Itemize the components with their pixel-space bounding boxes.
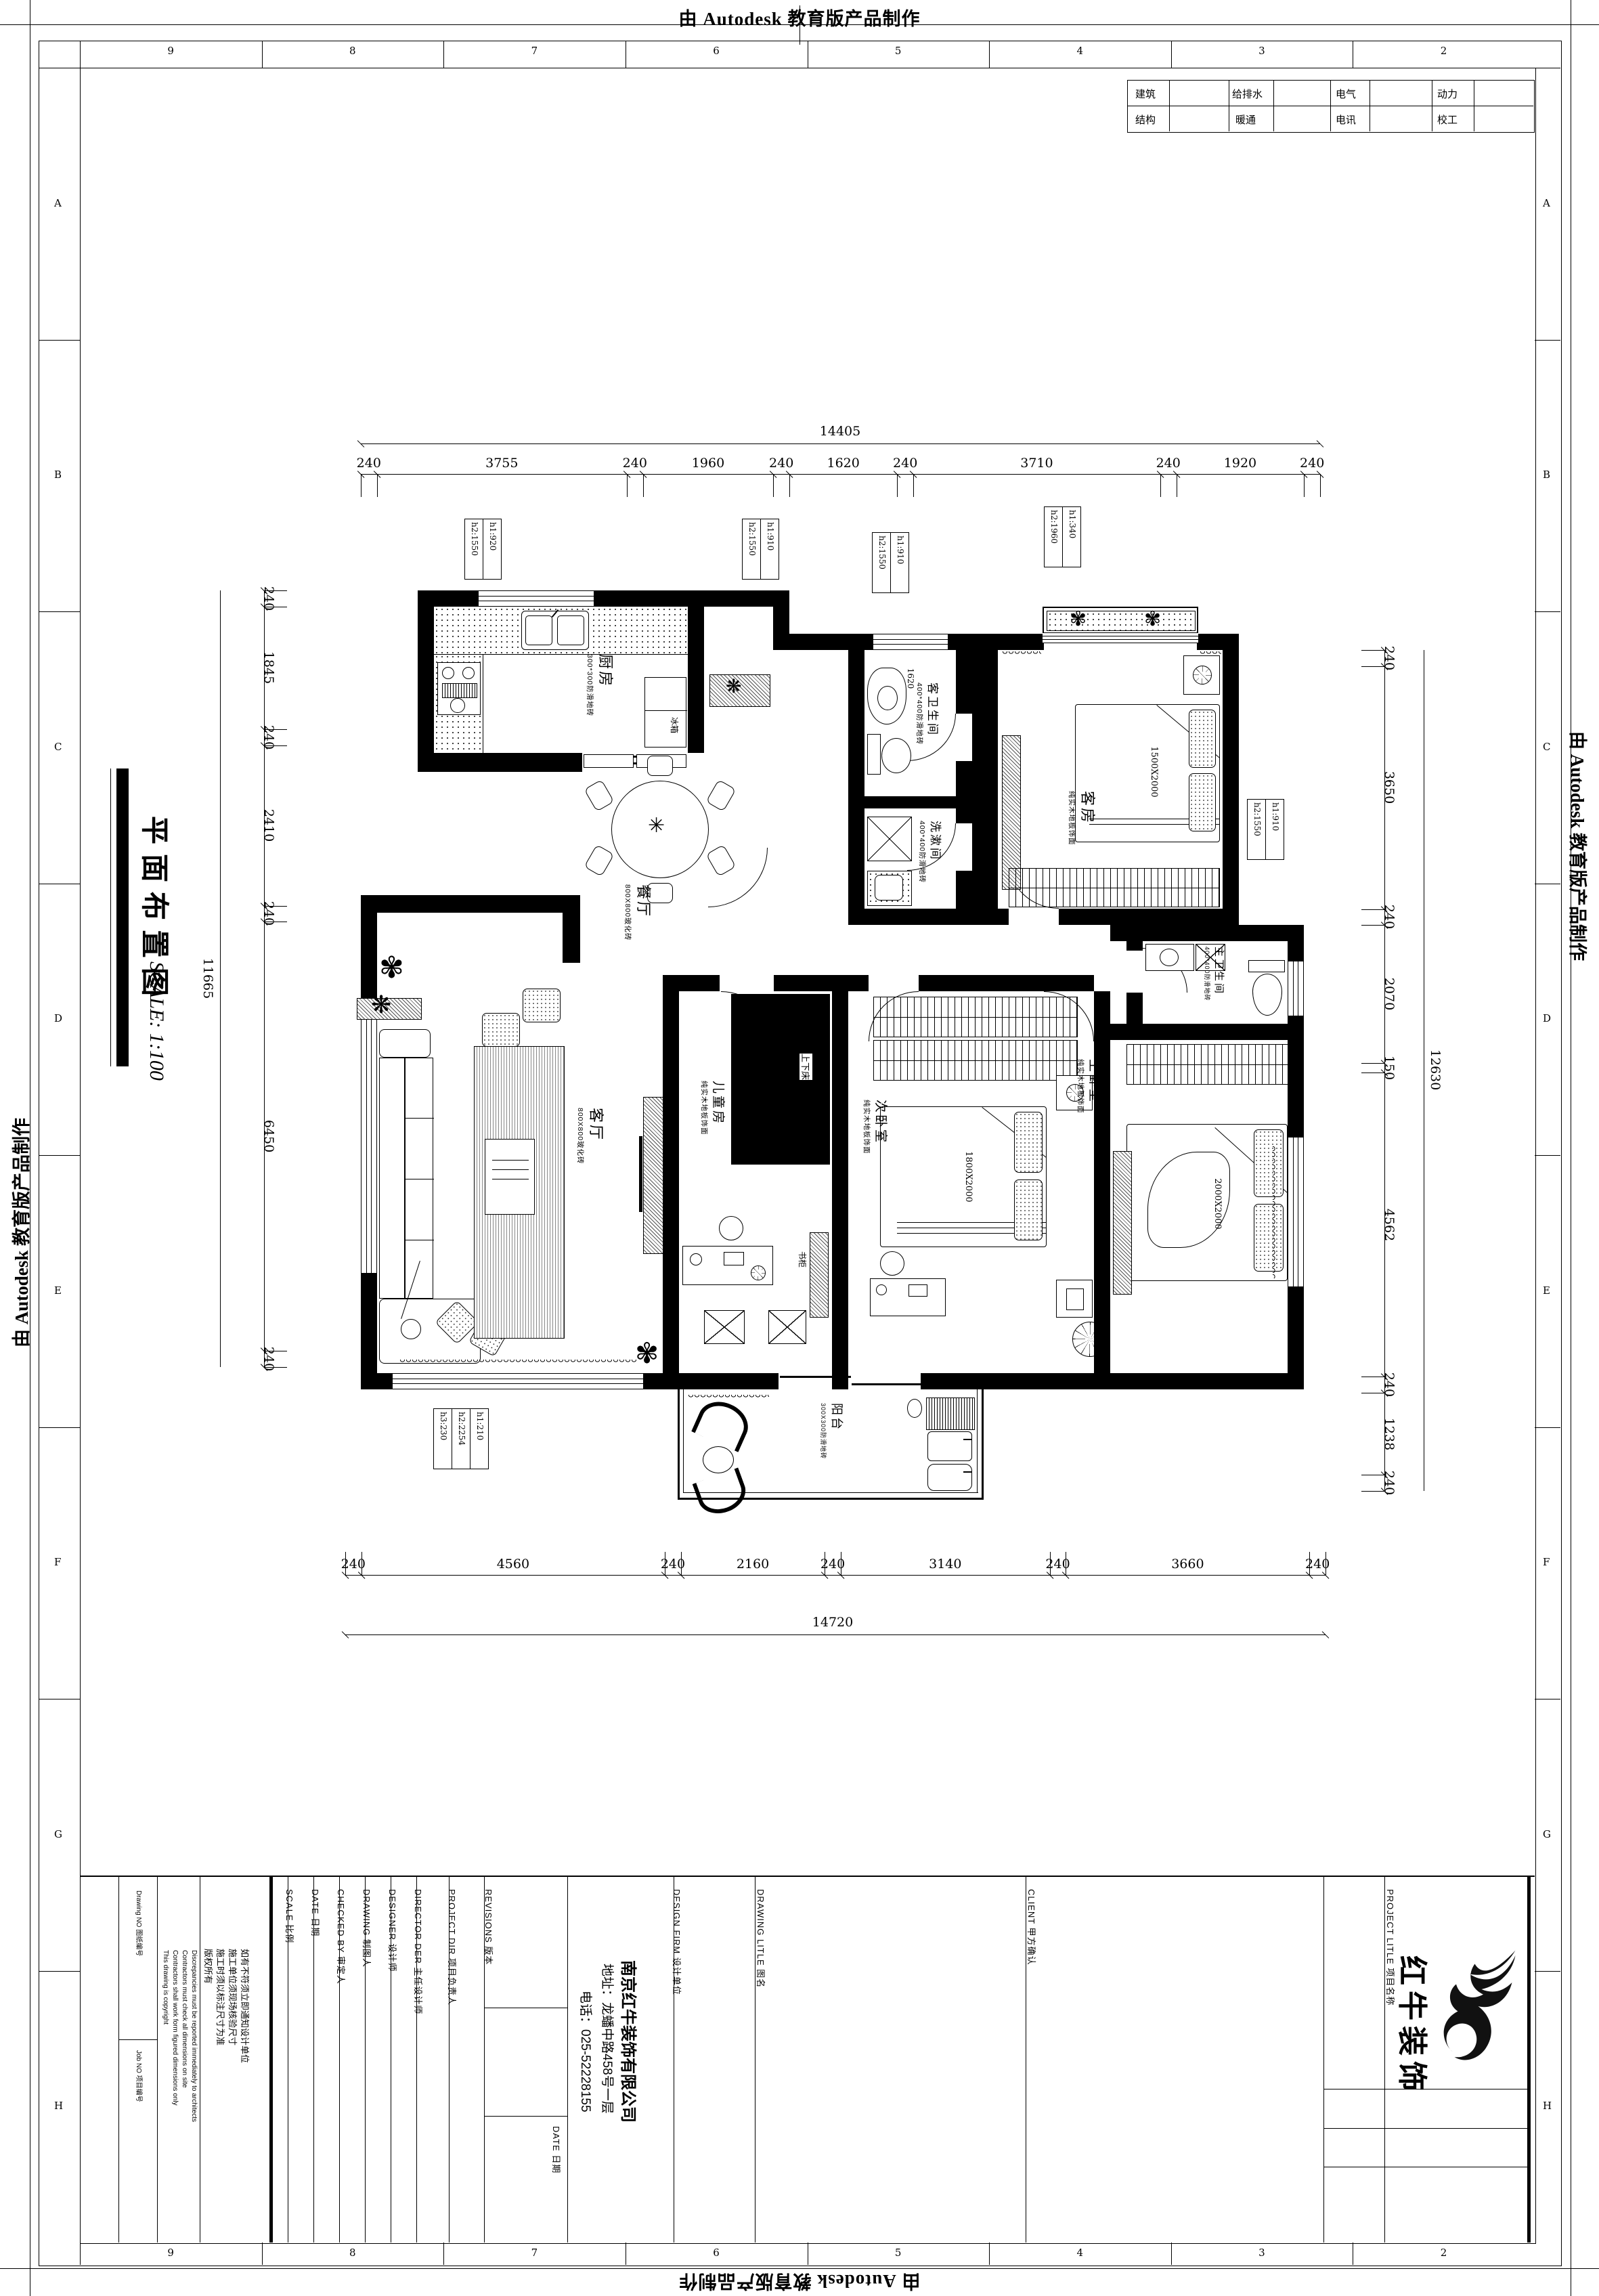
rname: 主卫生间 [1212, 947, 1227, 1001]
wall [848, 650, 864, 925]
dim-label: 1238 [1382, 1417, 1397, 1450]
grid-tick [80, 2243, 81, 2265]
dim-ext [627, 474, 628, 497]
curtain-master [1273, 1146, 1279, 1278]
guest-basin [867, 668, 906, 724]
rname: 餐厅 [634, 884, 655, 941]
plant-icon: ✾ [379, 953, 404, 983]
dim-label: 1960 [692, 456, 724, 471]
grid-tick [1535, 884, 1560, 884]
furn [690, 1253, 702, 1265]
room-label-children: 儿童房纯实木地板饰面 [699, 1081, 728, 1135]
tagcell: h1:340 [1062, 507, 1080, 567]
dim-ext [897, 474, 898, 497]
wardrobe-hangers [873, 1040, 1078, 1081]
grid-ref-label: F [1543, 1556, 1550, 1568]
dim-label: 240 [1156, 456, 1181, 471]
dim-total-top: 14405 [820, 424, 860, 439]
dim-ext [1361, 1393, 1384, 1393]
grid-tick [80, 41, 81, 68]
dim-label: 1920 [1224, 456, 1256, 471]
line [406, 1179, 434, 1179]
title-rule-thick [116, 768, 129, 1066]
grid-tick [262, 2243, 263, 2265]
grid-tick [443, 2243, 444, 2265]
project-dir-label: PROJECT DIR 项目负责人 [446, 1889, 459, 2006]
dim-label: 240 [1382, 905, 1397, 929]
curtain-guest [1002, 651, 1041, 657]
pillow [1254, 1129, 1284, 1197]
guest-toilet-tank [867, 734, 881, 775]
dim-label: 240 [893, 456, 917, 471]
room-label-second-bed: 次卧室纯实木地板饰面 [862, 1100, 891, 1154]
furn [724, 1252, 744, 1265]
dim-ext [1361, 1475, 1384, 1475]
dim-label: 240 [1045, 1557, 1070, 1572]
grid-tick [626, 41, 626, 68]
grid-tick [1353, 2243, 1353, 2265]
grid-tick [39, 1699, 80, 1699]
rname: 客卫生间 [925, 683, 942, 745]
tagcell: h1:210 [470, 1409, 488, 1469]
line [1432, 80, 1432, 131]
wall [848, 909, 972, 925]
wall [956, 761, 972, 823]
line [1197, 607, 1198, 650]
grid-tick [1535, 68, 1560, 68]
grid-ref-label: 2 [1441, 45, 1447, 57]
sofa-armrest [379, 1029, 431, 1058]
tagcell: h2:2254 [452, 1409, 470, 1469]
coffee-table [485, 1139, 535, 1215]
cell-label: 校工 [1437, 112, 1458, 127]
dim-ext [377, 474, 378, 497]
dim-total-right: 12630 [1428, 1049, 1443, 1090]
dim-label: 240 [769, 456, 793, 471]
height-tag: h1:910 h2:1550 [742, 519, 779, 580]
note-en: This drawing is copyright [162, 1950, 169, 2024]
cell-label: 电气 [1336, 87, 1356, 101]
banner-bottom-line [0, 2268, 1599, 2269]
plant-icon: ❋ [726, 677, 741, 696]
dim-label: 240 [261, 586, 276, 611]
note-cn: 如有不符须立即通知设计单位 [239, 1949, 252, 2063]
grid-tick [1353, 41, 1353, 68]
kitchen-stove [437, 662, 481, 715]
abs [1047, 611, 1196, 631]
wall [848, 975, 869, 991]
plant-icon: ✾ [635, 1339, 659, 1368]
dim-ext [1361, 1491, 1384, 1492]
rnote: 纯实木地板饰面 [699, 1081, 709, 1135]
note-en: Contractors shall work form figured dime… [171, 1950, 179, 2106]
fold [739, 1103, 829, 1152]
height-tag: h1:910 h2:1550 [1247, 799, 1284, 860]
dim-line [264, 590, 265, 1367]
dim-ext [1361, 650, 1384, 651]
second-chair [880, 1251, 904, 1276]
dim-ext [1160, 474, 1161, 497]
rnote: 纯实木地板饰面 [1076, 1059, 1086, 1114]
grid-tick [1535, 611, 1560, 612]
grid-ref-label: 4 [1076, 2247, 1083, 2259]
grid-ref-label: 6 [713, 2247, 720, 2259]
room-label-guest-room: 客房纯实木地板饰面 [1067, 791, 1099, 846]
dim-ext [361, 474, 362, 497]
wall [864, 796, 956, 808]
floor-cushion [523, 989, 561, 1022]
bath-vanity [1145, 944, 1194, 971]
floor-lamp [401, 1319, 421, 1339]
dim-line [345, 1575, 1326, 1576]
company-name: 南京红牛装饰有限公司 [618, 1960, 642, 2123]
grid-tick [1535, 1699, 1560, 1699]
director-label: DIRECTOR DER 主任设计师 [412, 1889, 425, 2014]
logo-text: 红牛装饰 [1393, 1955, 1437, 2096]
grid-tick [39, 1971, 80, 1972]
guest-tv-cabinet [1002, 735, 1021, 890]
grid-ref-label: 5 [895, 2247, 902, 2259]
room-label-guest-bath: 客卫生间400*400防滑地砖 [915, 683, 942, 745]
height-tag: h1:210 h2:2254 h3:230 [433, 1408, 489, 1469]
line [1043, 607, 1044, 650]
line [1474, 80, 1474, 131]
entry-door-leaf [584, 754, 634, 768]
dim-label: 2160 [737, 1557, 769, 1572]
dim-total-bottom: 14720 [812, 1615, 853, 1630]
dim-ext [1304, 474, 1305, 497]
grid-tick [808, 41, 808, 68]
tagcell: h1:910 [890, 533, 908, 592]
grid-ref-label: C [1543, 741, 1550, 753]
grid-tick [1535, 340, 1560, 341]
dim-ext [1361, 1063, 1384, 1064]
tagcell: h2:1550 [743, 519, 760, 579]
grid-ref-label: A [1543, 197, 1550, 209]
cell-label: 电讯 [1336, 112, 1356, 127]
line [1424, 650, 1424, 1491]
dim-total-left: 11665 [200, 958, 215, 999]
rname: 客房 [1078, 791, 1099, 846]
rnote: 纯实木地板饰面 [862, 1100, 872, 1154]
grid-tick [262, 41, 263, 68]
line [982, 1389, 984, 1499]
drawing-title-label: DRAWING LITLE 图名 [755, 1889, 768, 1988]
dim-label: 4560 [497, 1557, 529, 1572]
grid-tick [989, 2243, 990, 2265]
guest-wardrobe [1009, 868, 1220, 907]
line [852, 1383, 923, 1385]
wall [1288, 1016, 1304, 1138]
grid-tick [626, 2243, 626, 2265]
line [1273, 80, 1274, 131]
line [157, 1877, 158, 2243]
guest-bed-size: 1500X2000 [1149, 746, 1159, 797]
line [1229, 80, 1229, 131]
washboard [926, 1398, 975, 1430]
dim-label: 3660 [1171, 1557, 1204, 1572]
wall [688, 607, 704, 753]
shower-tray [867, 817, 912, 861]
bookcase-label: 书柜 [797, 1251, 808, 1268]
balcony-sink [927, 1431, 972, 1461]
line [118, 1877, 119, 2243]
grid-ref-label: D [54, 1012, 62, 1024]
path [1444, 1951, 1516, 2060]
pillow [1014, 1112, 1043, 1173]
tap [907, 1399, 922, 1418]
scale-label: SCALE 比例 [284, 1889, 297, 1943]
wall [773, 634, 873, 650]
furn [557, 615, 584, 645]
wall [1110, 925, 1304, 941]
grid-tick [39, 68, 80, 68]
tagcell: h2:1960 [1045, 507, 1062, 567]
height-tag: h1:910 h2:1550 [872, 532, 909, 593]
line [567, 1877, 568, 2243]
dim-ext [789, 474, 790, 497]
dim-label: 3140 [929, 1557, 961, 1572]
line [1169, 80, 1170, 131]
page-title-scale: SCALE: 1:100 [145, 961, 168, 1081]
pillow [1189, 773, 1216, 831]
fridge: 冰箱 [644, 677, 686, 748]
grid-tick [39, 611, 80, 612]
rname: 次卧室 [873, 1100, 891, 1154]
grid-ref-label: 3 [1258, 45, 1265, 57]
rnote: 400*400防滑地砖 [1203, 947, 1212, 1001]
plant-icon: ✾ [1144, 609, 1161, 630]
dim-label: 240 [261, 901, 276, 926]
bunk-bed-label: 上下床 [799, 1054, 812, 1080]
wall [832, 991, 848, 1389]
second-desk [870, 1278, 946, 1316]
dim-label: 3650 [1382, 771, 1397, 804]
grid-tick [1535, 1427, 1560, 1428]
room-label-master-bed: 主卧室纯实木地板饰面 [1076, 1059, 1105, 1114]
cell-label: 动力 [1437, 87, 1458, 101]
grid-tick [39, 1155, 80, 1156]
tagtxt: h2:2254 [457, 1412, 466, 1446]
spoke [751, 1265, 766, 1280]
dim-ext [1361, 666, 1384, 667]
bookcase [810, 1232, 829, 1318]
tagtxt: h3:230 [439, 1412, 448, 1440]
guest-toilet [881, 738, 911, 773]
tagtxt: h1:910 [766, 522, 775, 550]
banner-right: 由 Autodesk 教育版产品制作 [1566, 731, 1592, 961]
cell-label: 暖通 [1235, 112, 1256, 127]
tagcell: h2:1550 [465, 519, 483, 579]
room-label-dining: 餐厅800X800玻化砖 [623, 884, 655, 941]
grid-ref-label: 3 [1258, 2247, 1265, 2259]
rname: 客厅 [586, 1108, 608, 1165]
furn [1160, 949, 1179, 966]
line [963, 1439, 971, 1440]
rname: 洗漱间 [928, 821, 945, 883]
dim-label: 3755 [485, 456, 518, 471]
line [492, 1169, 529, 1170]
wall [563, 895, 580, 963]
grid-ref-label: B [54, 469, 62, 481]
living-south-window [393, 1373, 643, 1389]
wall [1223, 634, 1239, 925]
wall [377, 895, 580, 913]
note-cn: 施工单位须现场核验尺寸 [227, 1949, 240, 2045]
wall [919, 975, 1094, 991]
furn [525, 615, 552, 645]
dim-label: 240 [623, 456, 647, 471]
tagtxt: h2:1550 [470, 522, 479, 556]
grid-tick [989, 41, 990, 68]
grid-ref-label: F [54, 1556, 61, 1568]
cell-label: 建筑 [1135, 87, 1156, 101]
rname: 厨房 [596, 654, 617, 716]
plant-icon: ✾ [1070, 609, 1087, 630]
master-bath-window [1288, 961, 1304, 1016]
banner-right-line [1571, 0, 1571, 2296]
dining-centerpiece: ✳ [648, 816, 665, 836]
line [406, 1240, 434, 1240]
tagtxt: h1:340 [1068, 510, 1077, 538]
wall [1288, 925, 1304, 961]
wall [663, 975, 679, 1389]
grid-tick [1171, 2243, 1172, 2265]
wall [1126, 993, 1143, 1024]
furn [1066, 1288, 1084, 1310]
line [977, 1389, 978, 1492]
line [80, 1876, 1535, 1877]
dim-label: 240 [1382, 1372, 1397, 1397]
rnote: 800X800玻化砖 [575, 1108, 586, 1165]
cell-label: 结构 [1135, 112, 1156, 127]
inner-dim-bath: 1620 [906, 668, 915, 689]
tagtxt: h2:1960 [1049, 510, 1059, 544]
grid-ref-label: 9 [167, 45, 174, 57]
grid-ref-label: E [1543, 1284, 1550, 1297]
grid-tick [39, 340, 80, 341]
banner-top-tick [799, 5, 800, 45]
sofa-back [379, 1058, 405, 1299]
banner-bottom: 由 Autodesk 教育版产品制作 [0, 2270, 1599, 2296]
rnote: 纯实木地板饰面 [1067, 791, 1077, 846]
line [683, 1389, 684, 1492]
wash-basin [875, 875, 903, 901]
wall [774, 975, 848, 991]
tagcell: h2:1550 [873, 533, 890, 592]
job-no-label: Job NO 项目编号 [135, 2050, 145, 2102]
line [1323, 2128, 1527, 2129]
height-tag: h1:920 h2:1550 [464, 519, 502, 580]
dim-label: 240 [357, 456, 381, 471]
rnote: 300*300防滑地砖 [585, 654, 595, 716]
room-label-wash: 洗漱间400*400防滑地砖 [917, 821, 945, 883]
curtain-balcony [688, 1395, 769, 1401]
grid-ref-label: E [54, 1284, 62, 1297]
grid-ref-label: C [54, 741, 62, 753]
dim-label: 6450 [261, 1120, 276, 1152]
line [484, 2008, 567, 2008]
bay-window [1043, 607, 1198, 608]
rname: 儿童房 [710, 1081, 728, 1135]
dim-label: 240 [1382, 1471, 1397, 1495]
tagcell: h2:1550 [1248, 800, 1265, 859]
line [118, 2039, 157, 2040]
room-label-balcony: 阳台300X300防滑地砖 [819, 1403, 846, 1459]
company-phone: 电话：025-52228155 [577, 1991, 596, 2113]
client-label: CLIENT 甲方确认 [1026, 1889, 1038, 1966]
dim-ext [1361, 909, 1384, 910]
line [963, 1471, 971, 1473]
dim-label: 150 [1382, 1056, 1397, 1080]
dim-label: 240 [1382, 646, 1397, 670]
tagtxt: h1:210 [475, 1412, 485, 1440]
grid-ref-label: 6 [713, 45, 720, 57]
date-label: DATE 日期 [309, 1889, 322, 1936]
dim-ext [913, 474, 914, 497]
furn [450, 698, 465, 713]
cad-sheet: { "banner": {"text": "由 Autodesk 教育版产品制作… [0, 0, 1599, 2296]
dim-label: 240 [1305, 1557, 1330, 1572]
dim-label: 240 [1300, 456, 1324, 471]
dining-chair [647, 756, 673, 776]
note-en: Discrepancies must be reported immediate… [190, 1950, 198, 2122]
grid-ref-label: 2 [1441, 2247, 1447, 2259]
line [492, 1160, 529, 1161]
nightstand [1056, 1280, 1093, 1318]
curtain-living [399, 1360, 638, 1366]
tagcell: h1:910 [1265, 800, 1284, 859]
dim-label: 2070 [1382, 978, 1397, 1010]
tagtxt: h2:1550 [747, 522, 757, 556]
balcony-basin [927, 1464, 972, 1491]
wall [418, 590, 434, 772]
rname: 主卧室 [1087, 1059, 1105, 1114]
dim-ext [1361, 1073, 1384, 1073]
grid-ref-label: 7 [531, 2247, 538, 2259]
dim-label: 3710 [1020, 456, 1053, 471]
rnote: 800X800玻化砖 [623, 884, 633, 941]
pillow [1189, 710, 1216, 768]
wall [921, 1373, 1304, 1389]
tagtxt: h1:910 [1271, 802, 1280, 831]
toilet-tank [1248, 960, 1285, 972]
grid-ref-label: G [1543, 1828, 1551, 1840]
second-bed-size: 1800X2000 [963, 1151, 973, 1202]
dim-label: 1845 [261, 651, 276, 684]
bath-window [873, 634, 948, 650]
checked-label: CHECKED BY 审定人 [335, 1889, 348, 1985]
line [645, 710, 687, 711]
tagtxt: h1:920 [488, 522, 498, 550]
children-chair [719, 1216, 743, 1240]
tagcell: h3:230 [434, 1409, 452, 1469]
dim-ext [773, 474, 774, 497]
rnote: 400*400防滑地砖 [915, 683, 925, 745]
tagtxt: h1:910 [896, 536, 905, 564]
master-wardrobe [1126, 1044, 1289, 1085]
note-cn: 施工时须以标注尺寸为准 [215, 1949, 227, 2045]
pillow [1014, 1179, 1043, 1240]
tagtxt: h2:1550 [1252, 802, 1262, 836]
dim-ext [1361, 1377, 1384, 1377]
revisions-label: REVISIONS 版本 [483, 1889, 496, 1965]
nightstand [1183, 655, 1220, 695]
grid-ref-label: A [54, 197, 62, 209]
grid-ref-label: 9 [167, 2247, 174, 2259]
rev-date-label: DATE 日期 [550, 2126, 563, 2173]
wall [1110, 1024, 1288, 1040]
